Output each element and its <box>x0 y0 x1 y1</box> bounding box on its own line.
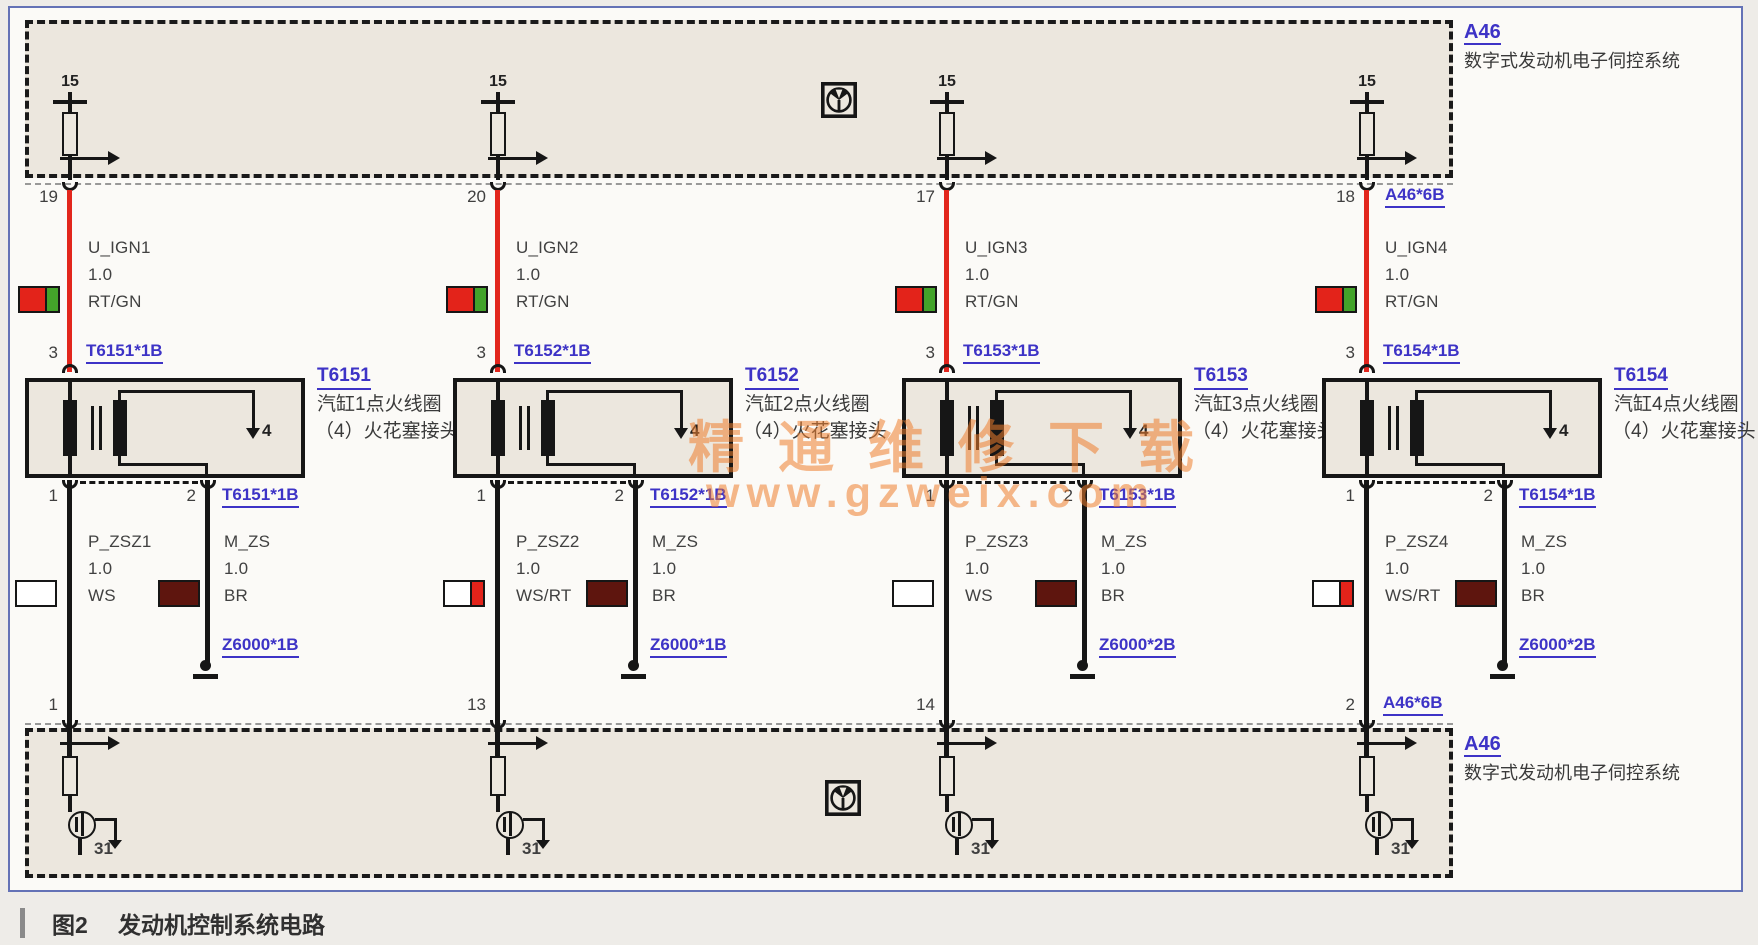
wire-color-swatch <box>1315 286 1357 313</box>
connector-housing-dash <box>1377 481 1495 484</box>
ignition-signal-label: U_IGN4 1.0 RT/GN <box>1385 234 1448 315</box>
connector-socket-icon <box>1359 720 1375 729</box>
ignition-circuit-column: 15 19 U_IGN1 1.0 RT/GN 3 T6151*1B <box>10 0 490 945</box>
ground-signal-label: M_ZS 1.0 BR <box>1521 528 1567 609</box>
wire-color-swatch <box>1312 580 1354 607</box>
terminal-15-label: 15 <box>48 74 92 90</box>
ground-point-label: Z6000*1B <box>650 636 727 658</box>
wire-color-swatch <box>586 580 628 607</box>
transistor-icon <box>68 811 96 839</box>
wire-color-swatch <box>158 580 200 607</box>
ignition-signal-label: U_IGN1 1.0 RT/GN <box>88 234 151 315</box>
caption-bar <box>20 908 25 938</box>
wire-gauge: 1.0 <box>1385 555 1449 582</box>
ground-arrow-icon <box>536 840 550 849</box>
wire-color-code: RT/GN <box>1385 288 1448 315</box>
ground-symbol <box>1077 660 1088 671</box>
transistor-icon <box>945 811 973 839</box>
connector-socket-icon <box>62 720 78 729</box>
wire-gauge: 1.0 <box>1521 555 1567 582</box>
coil-id-label: T6152 <box>745 366 799 390</box>
wire-color-code: WS/RT <box>1385 582 1449 609</box>
coil-pin-1-number: 1 <box>1315 487 1355 504</box>
ground-symbol <box>628 660 639 671</box>
coil-core <box>91 406 94 450</box>
secondary-winding <box>113 400 127 456</box>
wire-color-swatch <box>1035 580 1077 607</box>
coil-pin-2-number: 2 <box>584 487 624 504</box>
wire-color-code: BR <box>224 582 270 609</box>
branch-line <box>71 742 109 745</box>
ignition-signal-label: U_IGN3 1.0 RT/GN <box>965 234 1028 315</box>
driver-resistor-symbol <box>1359 756 1375 796</box>
ground-point-label: Z6000*2B <box>1099 636 1176 658</box>
wire-color-swatch <box>18 286 60 313</box>
coil-pin-1-number: 1 <box>446 487 486 504</box>
branch-line <box>948 742 986 745</box>
primary-signal-label: P_ZSZ2 1.0 WS/RT <box>516 528 580 609</box>
ecu-bottom-pin-number: 1 <box>18 696 58 713</box>
coil-top-connector-label: T6154*1B <box>1383 342 1460 364</box>
wire-color-code: BR <box>1101 582 1147 609</box>
wire-color-code: WS/RT <box>516 582 580 609</box>
ground-point-label: Z6000*2B <box>1519 636 1596 658</box>
signal-name: M_ZS <box>224 528 270 555</box>
coil-top-connector-label: T6153*1B <box>963 342 1040 364</box>
spark-terminal-number: 4 <box>262 422 271 439</box>
coil-ground-wire <box>1502 480 1507 664</box>
wire-color-code: BR <box>652 582 698 609</box>
ignition-trigger-wire <box>67 190 72 372</box>
coil-description-line1: 汽缸4点火线圈 <box>1614 394 1739 417</box>
ground-point-label: Z6000*1B <box>222 636 299 658</box>
driver-resistor-symbol <box>490 756 506 796</box>
connector-socket-icon <box>939 364 955 373</box>
primary-control-wire <box>495 480 500 758</box>
coil-core <box>99 406 102 450</box>
ground-arrow-icon <box>108 840 122 849</box>
connector-socket-icon <box>1359 364 1375 373</box>
branch-line <box>499 742 537 745</box>
signal-name: P_ZSZ2 <box>516 528 580 555</box>
arrow-right-icon <box>1405 151 1417 165</box>
ecu-bottom-pin-number: 14 <box>895 696 935 713</box>
coil-core <box>527 406 530 450</box>
coil-ground-wire <box>633 480 638 664</box>
connector-socket-icon <box>62 364 78 373</box>
spark-terminal-number: 4 <box>1559 422 1568 439</box>
connector-housing-dash <box>508 481 626 484</box>
ignition-signal-label: U_IGN2 1.0 RT/GN <box>516 234 579 315</box>
ground-symbol <box>1490 674 1515 679</box>
ground-symbol <box>621 674 646 679</box>
arrow-right-icon <box>536 736 548 750</box>
wire-color-code: RT/GN <box>965 288 1028 315</box>
signal-name: U_IGN2 <box>516 234 579 261</box>
ground-arrow-icon <box>1405 840 1419 849</box>
ground-signal-label: M_ZS 1.0 BR <box>652 528 698 609</box>
wire-gauge: 1.0 <box>88 261 151 288</box>
primary-control-wire <box>1364 480 1369 758</box>
signal-name: P_ZSZ4 <box>1385 528 1449 555</box>
ecu-top-pin-number: 17 <box>895 188 935 205</box>
ecu-top-pin-number: 20 <box>446 188 486 205</box>
signal-name: M_ZS <box>652 528 698 555</box>
arrow-right-icon <box>108 151 120 165</box>
arrow-right-icon <box>536 151 548 165</box>
terminal-15-label: 15 <box>1345 74 1389 90</box>
coil-top-connector-label: T6152*1B <box>514 342 591 364</box>
watermark-text: 精通维修下载 <box>688 420 1228 476</box>
coil-core <box>519 406 522 450</box>
coil-top-connector-label: T6151*1B <box>86 342 163 364</box>
wiring-diagram-page: A46 数字式发动机电子伺控系统 A46 数字式发动机电子伺控系统 15 19 … <box>0 0 1758 945</box>
ignition-trigger-wire <box>495 190 500 372</box>
fuse-symbol <box>62 112 78 156</box>
wire-color-swatch <box>443 580 485 607</box>
spark-output-arrow-icon <box>1543 428 1557 439</box>
ecu-top-pin-number: 19 <box>18 188 58 205</box>
wire-color-code: WS <box>965 582 1029 609</box>
coil-core <box>1388 406 1391 450</box>
coil-top-pin-number: 3 <box>1315 344 1355 361</box>
wire-gauge: 1.0 <box>88 555 152 582</box>
primary-control-wire <box>944 480 949 758</box>
coil-description-line1: 汽缸1点火线圈 <box>317 394 442 417</box>
arrow-right-icon <box>985 736 997 750</box>
arrow-right-icon <box>108 736 120 750</box>
wire-color-swatch <box>895 286 937 313</box>
primary-winding <box>1360 400 1374 456</box>
branch-line <box>499 157 537 160</box>
ignition-circuit-column: 15 18 A46*6B U_IGN4 1.0 RT/GN 3 T6154*1B <box>1307 0 1758 945</box>
ground-symbol <box>1497 660 1508 671</box>
driver-resistor-symbol <box>62 756 78 796</box>
fuse-symbol <box>1359 112 1375 156</box>
ground-symbol <box>1070 674 1095 679</box>
signal-name: U_IGN1 <box>88 234 151 261</box>
ecu-top-pin-number: 18 <box>1315 188 1355 205</box>
primary-winding <box>491 400 505 456</box>
connector-socket-icon <box>490 364 506 373</box>
wire-color-code: BR <box>1521 582 1567 609</box>
connector-socket-icon <box>939 720 955 729</box>
terminal-15-label: 15 <box>476 74 520 90</box>
coil-id-label: T6151 <box>317 366 371 390</box>
coil-top-pin-number: 3 <box>18 344 58 361</box>
coil-top-pin-number: 3 <box>446 344 486 361</box>
wire-gauge: 1.0 <box>516 261 579 288</box>
coil-pin-2-number: 2 <box>1453 487 1493 504</box>
ground-arrow-icon <box>985 840 999 849</box>
primary-signal-label: P_ZSZ3 1.0 WS <box>965 528 1029 609</box>
connector-socket-icon <box>490 720 506 729</box>
primary-winding <box>63 400 77 456</box>
coil-description-line2: （4）火花塞接头 <box>1612 421 1756 444</box>
coil-id-label: T6153 <box>1194 366 1248 390</box>
ecu-bottom-pin-number: 13 <box>446 696 486 713</box>
branch-line <box>1368 157 1406 160</box>
signal-name: P_ZSZ1 <box>88 528 152 555</box>
watermark-url: www.gzweix.com <box>706 472 1156 515</box>
fuse-symbol <box>490 112 506 156</box>
ecu-bottom-connector-label: A46*6B <box>1383 694 1443 716</box>
signal-name: U_IGN4 <box>1385 234 1448 261</box>
wire-gauge: 1.0 <box>1385 261 1448 288</box>
coil-bottom-connector-label: T6154*1B <box>1519 486 1596 508</box>
driver-resistor-symbol <box>939 756 955 796</box>
terminal-15-label: 15 <box>925 74 969 90</box>
wire-color-code: WS <box>88 582 152 609</box>
arrow-right-icon <box>1405 736 1417 750</box>
coil-id-label: T6154 <box>1614 366 1668 390</box>
signal-name: P_ZSZ3 <box>965 528 1029 555</box>
fuse-symbol <box>939 112 955 156</box>
wire-gauge: 1.0 <box>652 555 698 582</box>
coil-ground-wire <box>205 480 210 664</box>
wire-gauge: 1.0 <box>965 261 1028 288</box>
signal-name: U_IGN3 <box>965 234 1028 261</box>
secondary-winding <box>541 400 555 456</box>
secondary-winding <box>1410 400 1424 456</box>
wire-color-swatch <box>1455 580 1497 607</box>
connector-housing-dash <box>80 481 198 484</box>
ground-signal-label: M_ZS 1.0 BR <box>1101 528 1147 609</box>
ignition-trigger-wire <box>944 190 949 372</box>
coil-pin-2-number: 2 <box>156 487 196 504</box>
wire-gauge: 1.0 <box>224 555 270 582</box>
transistor-icon <box>1365 811 1393 839</box>
ecu-top-connector-label: A46*6B <box>1385 186 1445 208</box>
ecu-bottom-pin-number: 2 <box>1315 696 1355 713</box>
branch-line <box>1368 742 1406 745</box>
primary-signal-label: P_ZSZ4 1.0 WS/RT <box>1385 528 1449 609</box>
spark-output-arrow-icon <box>246 428 260 439</box>
caption-figure-number: 图2 <box>52 912 88 940</box>
signal-name: M_ZS <box>1101 528 1147 555</box>
wire-color-code: RT/GN <box>88 288 151 315</box>
ignition-trigger-wire <box>1364 190 1369 372</box>
ignition-coil-box: 4 <box>25 378 305 478</box>
coil-top-pin-number: 3 <box>895 344 935 361</box>
coil-bottom-connector-label: T6151*1B <box>222 486 299 508</box>
spark-output-arrow-icon <box>674 428 688 439</box>
coil-description-line1: 汽缸2点火线圈 <box>745 394 870 417</box>
wire-gauge: 1.0 <box>965 555 1029 582</box>
coil-core <box>1396 406 1399 450</box>
branch-line <box>948 157 986 160</box>
ground-symbol <box>200 660 211 671</box>
caption-title: 发动机控制系统电路 <box>118 912 325 940</box>
wire-gauge: 1.0 <box>1101 555 1147 582</box>
transistor-icon <box>496 811 524 839</box>
ground-signal-label: M_ZS 1.0 BR <box>224 528 270 609</box>
wire-color-code: RT/GN <box>516 288 579 315</box>
primary-control-wire <box>67 480 72 758</box>
wire-color-swatch <box>892 580 934 607</box>
branch-line <box>71 157 109 160</box>
ground-symbol <box>193 674 218 679</box>
wire-color-swatch <box>446 286 488 313</box>
arrow-right-icon <box>985 151 997 165</box>
ignition-coil-box: 4 <box>1322 378 1602 478</box>
signal-name: M_ZS <box>1521 528 1567 555</box>
wire-color-swatch <box>15 580 57 607</box>
primary-signal-label: P_ZSZ1 1.0 WS <box>88 528 152 609</box>
coil-pin-1-number: 1 <box>18 487 58 504</box>
coil-description-line1: 汽缸3点火线圈 <box>1194 394 1319 417</box>
wire-gauge: 1.0 <box>516 555 580 582</box>
